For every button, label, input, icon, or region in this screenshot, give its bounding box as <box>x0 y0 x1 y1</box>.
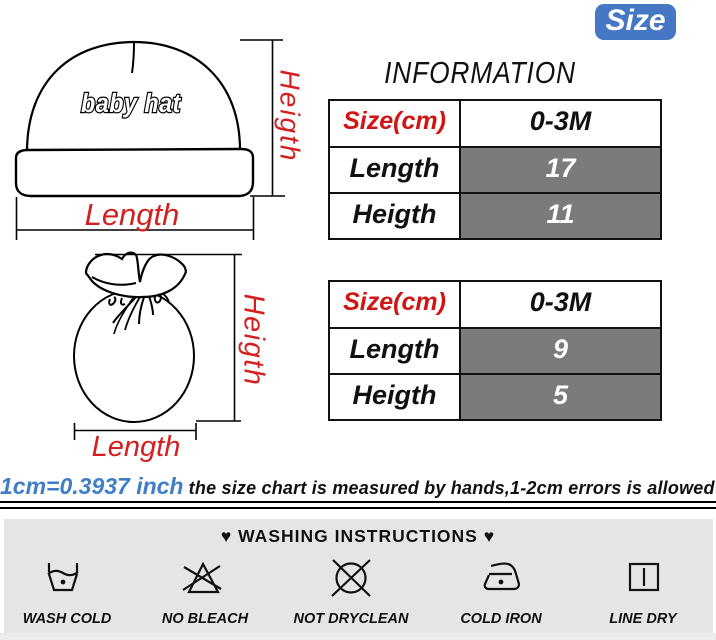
svg-text:Heigth: Heigth <box>237 294 269 387</box>
svg-text:Length: Length <box>92 431 181 463</box>
svg-text:baby hat: baby hat <box>81 90 182 118</box>
svg-text:Heigth: Heigth <box>275 70 306 163</box>
svg-text:Length: Length <box>85 197 180 232</box>
